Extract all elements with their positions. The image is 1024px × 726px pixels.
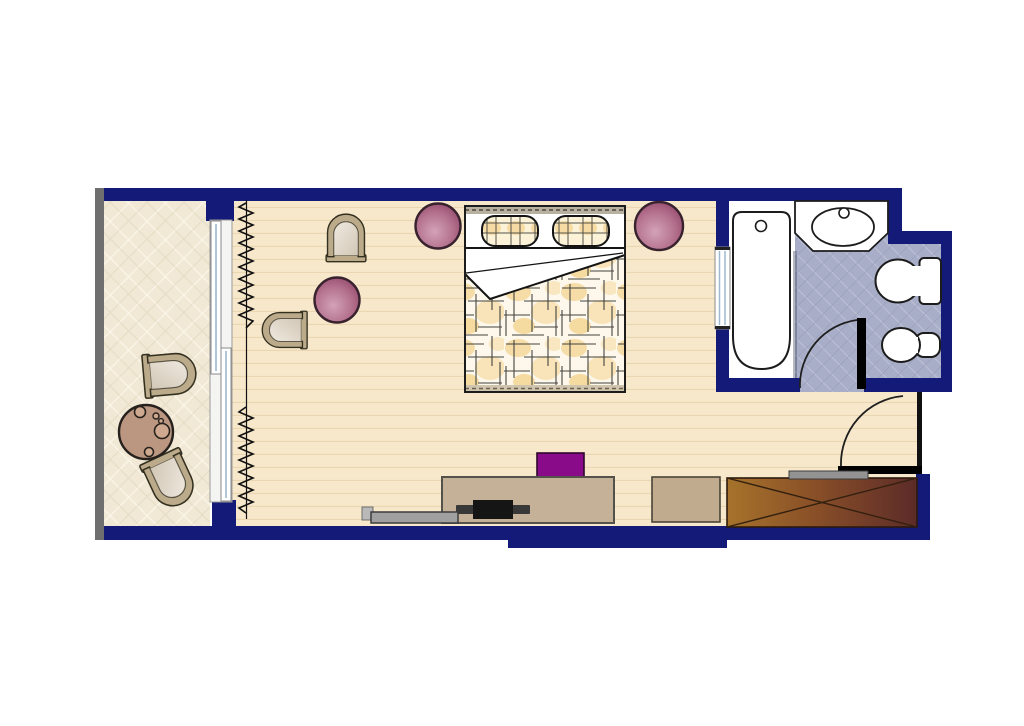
outside-mask <box>900 180 1024 231</box>
bedroom-bathroom-wall-upper <box>716 201 729 249</box>
bathroom-interior-window <box>715 247 730 329</box>
bed <box>465 206 625 392</box>
bathroom-door-threshold-tile <box>800 378 864 392</box>
desk-chair <box>537 453 584 477</box>
cup <box>145 448 154 457</box>
balcony-round-table <box>119 405 173 459</box>
platform-edge <box>793 251 797 378</box>
plate <box>155 424 170 439</box>
bottom-wall-left <box>214 526 508 540</box>
cup <box>153 413 159 419</box>
wardrobe <box>727 478 917 527</box>
bathroom-right-wall <box>941 231 952 392</box>
bottom-wall-middle <box>508 526 727 548</box>
pouf-bedside-left <box>416 204 461 249</box>
bidet <box>882 328 940 362</box>
entry-furniture <box>652 471 917 527</box>
balcony-outer-wall <box>95 188 104 540</box>
entry-right-wall-lower <box>916 474 930 540</box>
faucet <box>839 208 849 218</box>
pillow-left <box>482 216 538 246</box>
luggage-shelf <box>789 471 868 479</box>
bathroom-bottom-wall-left <box>716 378 800 392</box>
bottom-wall-right <box>727 526 930 540</box>
bathtub-drain <box>756 221 767 232</box>
balcony-bottom-wall <box>104 526 214 540</box>
pouf-bedside-right <box>635 202 683 250</box>
floor-plan-page <box>0 0 1024 726</box>
bathtub <box>733 212 790 369</box>
bedroom-bathroom-wall-lower <box>716 327 729 378</box>
bathroom-door-leaf <box>857 318 866 389</box>
sliding-glass-door <box>210 220 232 502</box>
cup <box>159 419 164 424</box>
bathroom-bottom-wall-right <box>864 378 952 392</box>
floor-plan <box>0 0 1024 726</box>
laptop <box>473 500 513 519</box>
media-bench <box>371 512 458 523</box>
entry-right-wall-thin <box>917 392 922 466</box>
desk <box>442 477 614 523</box>
cup <box>135 407 146 418</box>
armchair-left <box>262 311 307 349</box>
pillow-right <box>553 216 609 246</box>
sliding-door-top-pillar <box>206 188 234 221</box>
dresser <box>652 477 720 522</box>
pouf-left <box>315 278 360 323</box>
vanity <box>795 201 888 251</box>
armchair-by-window <box>326 214 366 262</box>
toilet <box>876 258 942 304</box>
